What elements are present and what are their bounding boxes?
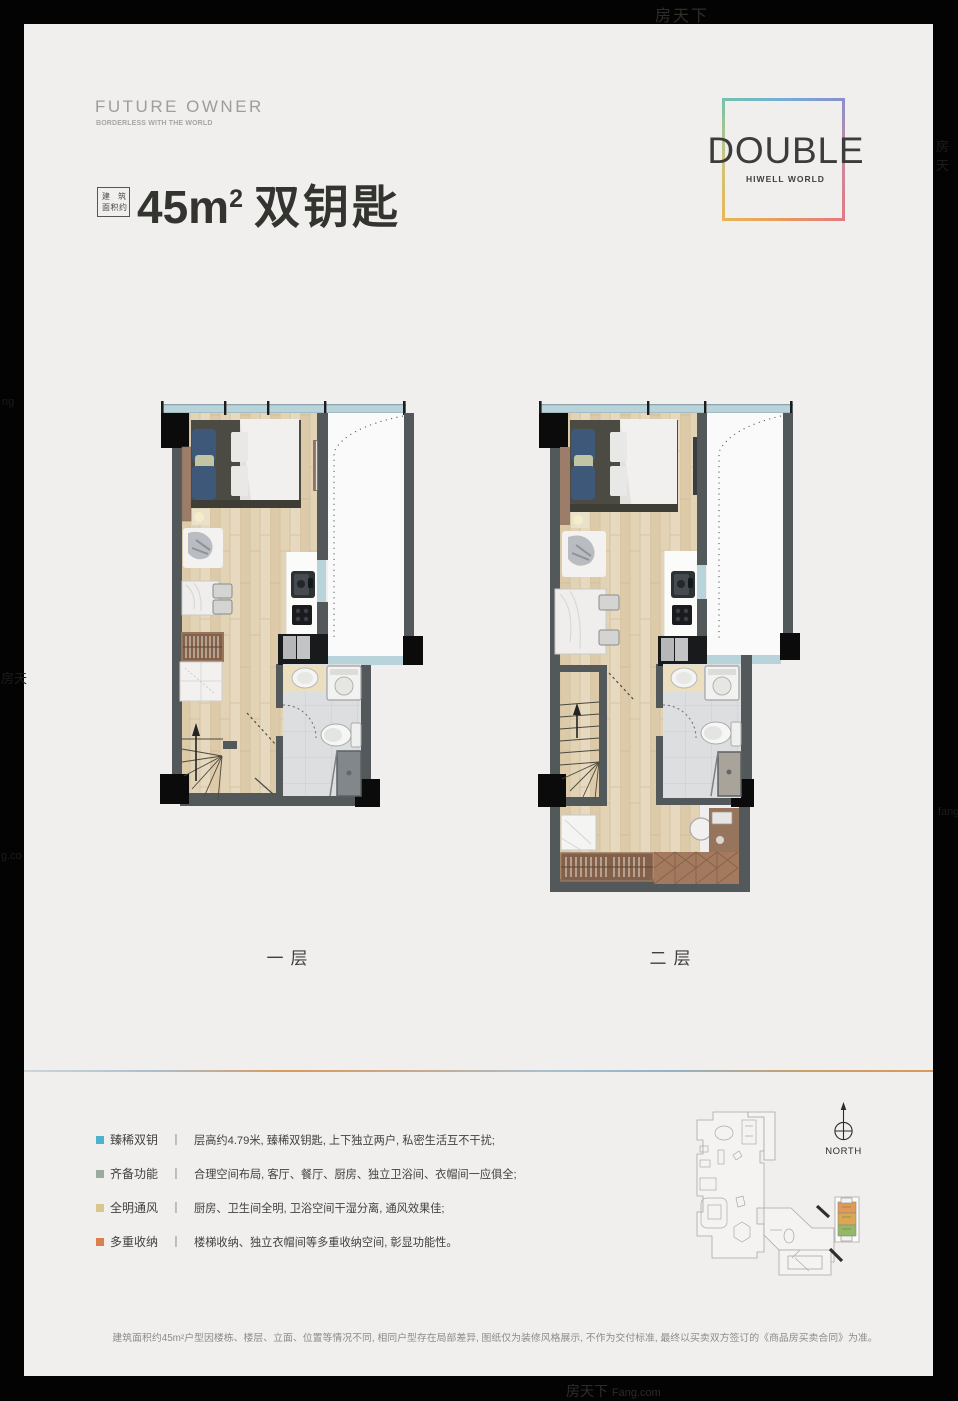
svg-text:NORTH: NORTH bbox=[825, 1146, 862, 1157]
